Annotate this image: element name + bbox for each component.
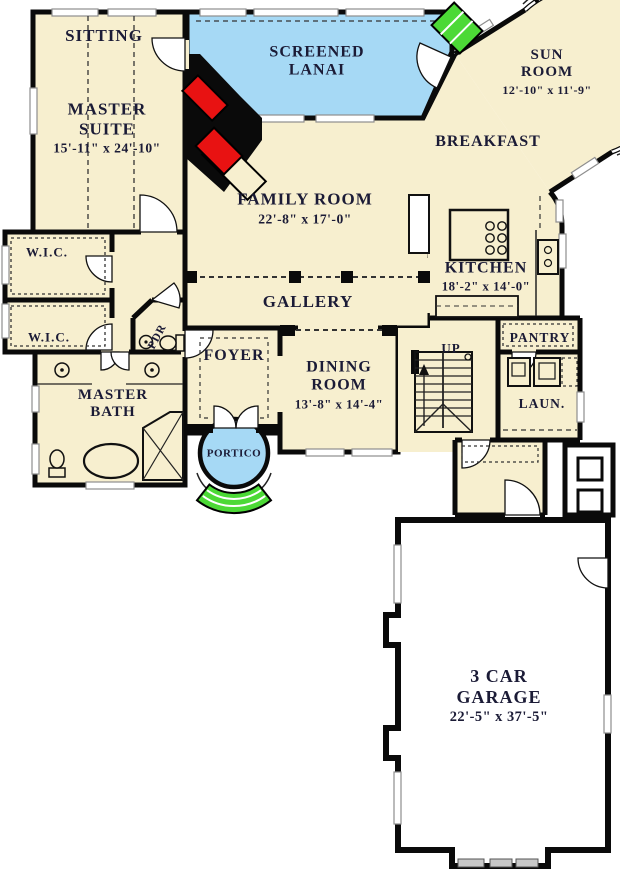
column — [289, 271, 301, 283]
burner — [486, 222, 494, 230]
entry-wall — [256, 424, 280, 433]
burner — [498, 222, 506, 230]
burner — [498, 246, 506, 254]
outdoor-structure — [565, 445, 613, 515]
column — [185, 271, 197, 283]
column — [418, 271, 430, 283]
wic-window — [2, 246, 9, 284]
breakfast-bay-window — [556, 200, 563, 222]
garage-door-panel — [490, 859, 512, 867]
plan-drawing — [0, 0, 620, 875]
column — [382, 325, 397, 336]
bath-window — [32, 386, 39, 412]
sitting-window — [108, 9, 156, 16]
lanai-screen-panel — [254, 9, 338, 16]
burner — [486, 246, 494, 254]
kitchen-window — [559, 234, 566, 268]
burner — [498, 234, 506, 242]
bathtub — [84, 444, 138, 478]
floor-plan: SITTING MASTER SUITE 15'-11" x 24'-10" S… — [0, 0, 620, 875]
garage-window — [394, 545, 401, 603]
garage-door-panel — [516, 859, 538, 867]
toilet — [49, 468, 65, 477]
master-window — [30, 88, 37, 134]
pdr-toilet-tank — [176, 335, 184, 351]
dining-window — [306, 449, 344, 456]
garage-window — [394, 772, 401, 824]
lanai-screen-panel — [200, 9, 246, 16]
lanai-screen-panel — [346, 9, 424, 16]
laundry-window — [577, 392, 584, 422]
washer — [534, 358, 560, 386]
family-window — [316, 115, 374, 122]
utility-sink — [508, 358, 530, 386]
bath-window — [86, 482, 134, 489]
kitchen-sink — [538, 240, 558, 274]
column — [341, 271, 353, 283]
garage-door-panel — [458, 859, 484, 867]
pdr-toilet — [160, 336, 176, 350]
toilet-bowl — [50, 450, 64, 468]
newel-post — [465, 354, 471, 360]
garage-window — [604, 695, 611, 733]
entry-wall — [185, 424, 213, 433]
family-builtin-cabinet — [409, 195, 429, 253]
dining-window — [352, 449, 392, 456]
bath-window — [32, 444, 39, 474]
wic-window — [2, 304, 9, 338]
column — [280, 325, 295, 336]
garage-outline — [386, 520, 608, 866]
sitting-window — [52, 9, 98, 16]
burner — [486, 234, 494, 242]
garage-structure — [386, 520, 611, 867]
